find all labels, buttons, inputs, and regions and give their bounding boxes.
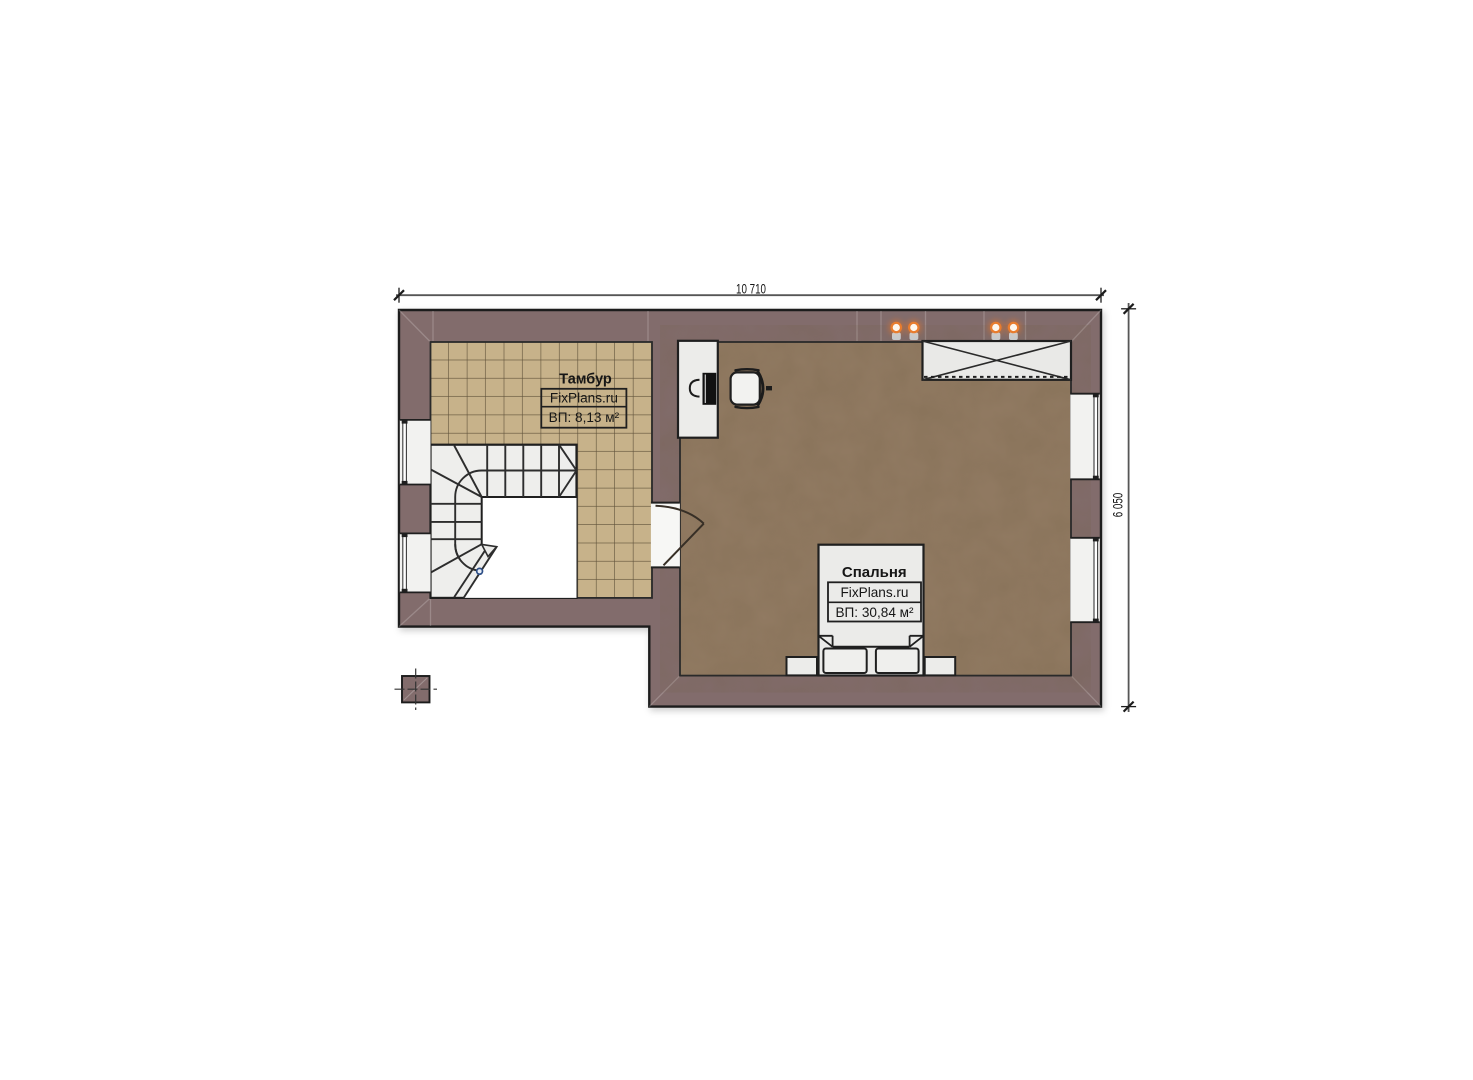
svg-text:ВП: 8,13 м²: ВП: 8,13 м² [549,410,620,425]
svg-text:Спальня: Спальня [842,564,907,581]
svg-text:FixPlans.ru: FixPlans.ru [841,585,909,600]
svg-text:10 710: 10 710 [736,281,766,297]
svg-text:FixPlans.ru: FixPlans.ru [550,391,618,406]
svg-text:Тамбур: Тамбур [559,372,612,388]
svg-text:6 050: 6 050 [1110,493,1126,518]
svg-text:ВП: 30,84 м²: ВП: 30,84 м² [835,605,914,620]
